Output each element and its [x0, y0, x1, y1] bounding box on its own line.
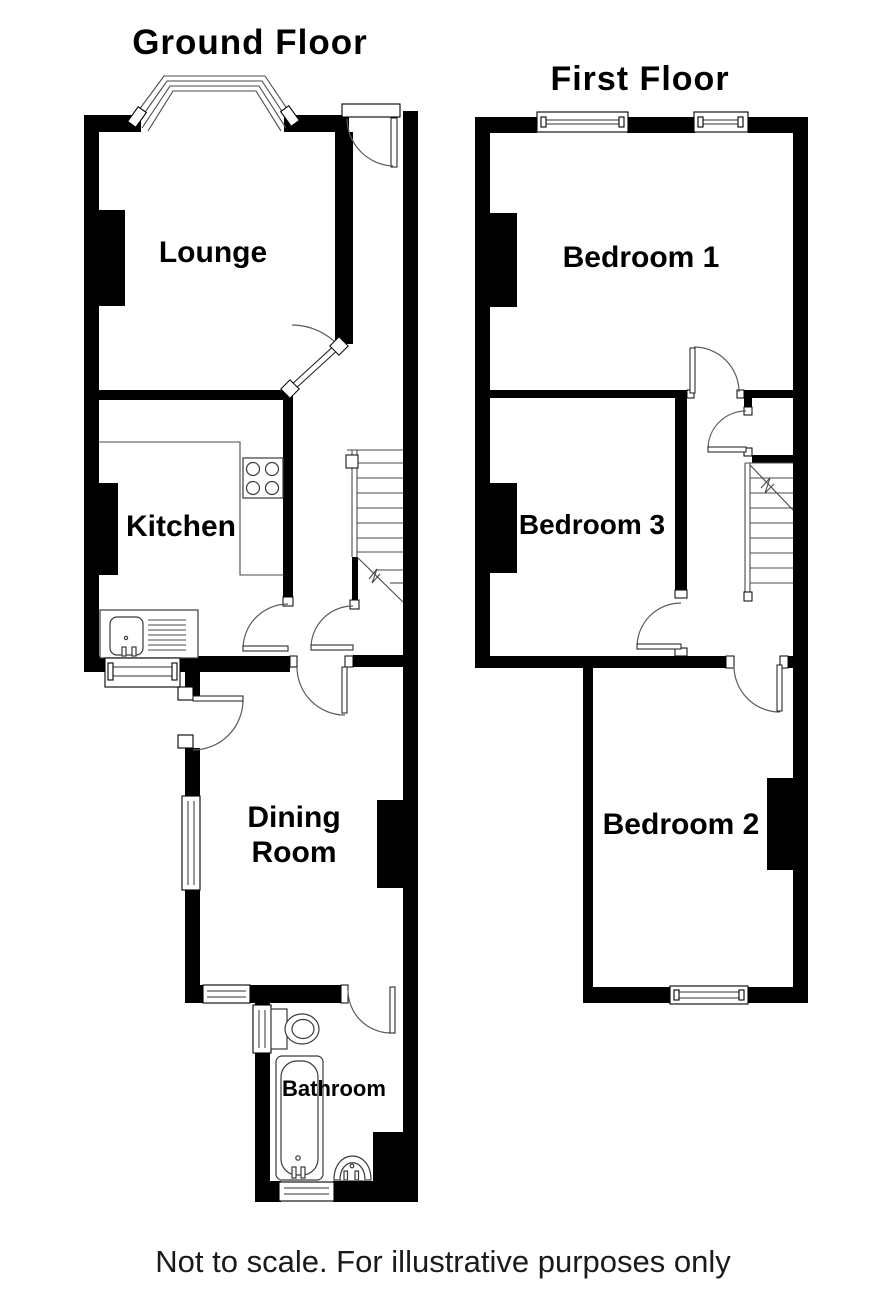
wall-segment — [99, 390, 283, 400]
toilet — [271, 1009, 319, 1049]
wall-segment — [788, 656, 796, 668]
wash-basin — [334, 1156, 371, 1180]
room-label-bedroom1: Bedroom 1 — [563, 241, 720, 274]
room-label-bathroom: Bathroom — [282, 1076, 386, 1101]
first-floor-plan: First Floor — [475, 60, 808, 1004]
chimney-breast — [767, 778, 793, 870]
dining-bottom-window — [203, 985, 250, 1003]
floor-plan-page: Ground Floor — [0, 0, 886, 1303]
bathroom-bottom-window — [279, 1182, 334, 1201]
wall-segment — [353, 655, 403, 667]
wall-segment — [583, 987, 670, 1003]
ground-floor-plan: Ground Floor — [84, 23, 418, 1202]
room-label-kitchen: Kitchen — [126, 510, 236, 543]
wall-segment — [185, 748, 200, 798]
dining-exterior-door — [178, 687, 243, 750]
bath — [276, 1056, 323, 1180]
wall-segment — [583, 656, 593, 1003]
wall-segment — [490, 390, 687, 398]
dining-side-window — [182, 796, 200, 890]
kitchen-door — [243, 597, 293, 651]
first-floor-title: First Floor — [550, 60, 729, 98]
bedroom2-window — [670, 986, 748, 1004]
landing-stairs-door — [708, 407, 752, 456]
room-label-bedroom3: Bedroom 3 — [519, 509, 665, 540]
wall-segment — [185, 985, 203, 1003]
chimney-breast — [490, 213, 517, 307]
chimney-breast — [99, 483, 118, 575]
bedroom2-door — [726, 656, 788, 712]
chimney-breast — [99, 210, 125, 306]
kitchen-window — [105, 658, 180, 687]
wall-segment — [250, 985, 270, 1003]
wall-segment — [373, 1132, 418, 1181]
chimney-breast — [490, 483, 517, 573]
wall-segment — [475, 656, 726, 668]
wall-segment — [744, 390, 793, 398]
wall-segment — [793, 117, 808, 1003]
wall-segment — [335, 132, 353, 344]
bathroom-door — [341, 985, 395, 1033]
ground-floor-title: Ground Floor — [132, 23, 368, 62]
hob — [243, 458, 283, 498]
dining-room-door — [290, 656, 353, 715]
wall-segment — [283, 390, 293, 598]
disclaimer-text: Not to scale. For illustrative purposes … — [155, 1244, 731, 1279]
wall-segment — [748, 987, 808, 1003]
wall-segment — [475, 117, 490, 668]
bedroom1-window-left — [537, 112, 628, 132]
room-label-bedroom2: Bedroom 2 — [603, 808, 760, 841]
wall-segment — [752, 455, 793, 463]
room-label-dining-1: Dining — [247, 801, 340, 834]
wall-segment — [403, 111, 418, 1132]
chimney-breast — [377, 800, 403, 888]
bay-window — [128, 76, 300, 131]
wall-segment — [333, 1181, 418, 1202]
bedroom1-window-right — [694, 112, 748, 132]
wall-segment — [84, 115, 99, 672]
wall-segment — [185, 888, 200, 985]
wall-segment — [352, 557, 358, 600]
floor-plan-drawing: Ground Floor — [0, 0, 886, 1303]
wall-segment — [675, 398, 687, 590]
bathroom-side-window — [253, 1005, 271, 1053]
staircase-first — [744, 463, 793, 601]
room-label-dining-2: Room — [252, 836, 337, 869]
bedroom3-door — [637, 590, 687, 656]
room-label-lounge: Lounge — [159, 236, 267, 269]
kitchen-sink — [100, 610, 198, 658]
bedroom1-door — [687, 347, 744, 398]
wall-segment — [270, 985, 342, 1003]
wall-segment — [255, 1181, 281, 1202]
hall-door — [311, 600, 359, 650]
wall-segment — [744, 398, 752, 407]
wall-segment — [627, 117, 695, 133]
